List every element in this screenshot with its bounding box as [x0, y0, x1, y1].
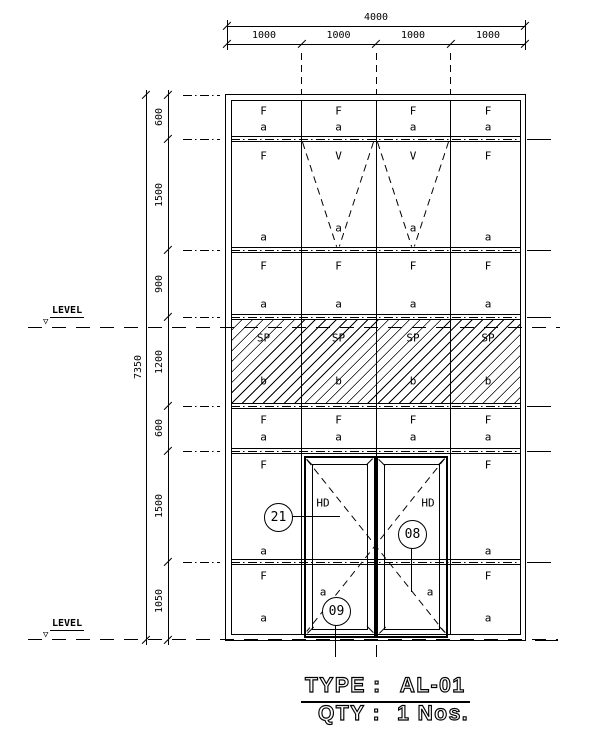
- transom: [231, 136, 521, 142]
- dim-label-overall-width: 4000: [364, 13, 388, 23]
- door-hardware-label: HD: [316, 498, 329, 509]
- extension-line: [527, 317, 551, 318]
- transom: [231, 448, 521, 454]
- panel-label: F: [260, 106, 267, 117]
- extension-line: [183, 451, 220, 452]
- qty-label: QTY :: [318, 702, 381, 726]
- panel-label: F: [485, 261, 492, 272]
- extension-line: [527, 406, 551, 407]
- extension-line: [183, 139, 220, 140]
- panel-label: b: [485, 376, 492, 387]
- dim-label-segment: 1050: [155, 589, 165, 613]
- panel-label: b: [335, 376, 342, 387]
- panel-label: F: [260, 415, 267, 426]
- panel-label: F: [335, 106, 342, 117]
- dim-label-segment: 900: [155, 275, 165, 293]
- centerline: [450, 53, 451, 95]
- panel-label: F: [335, 261, 342, 272]
- panel-label: V: [410, 151, 417, 162]
- extension-line: [527, 139, 551, 140]
- panel-label: F: [260, 571, 267, 582]
- panel-label: F: [485, 460, 492, 471]
- dim-label-segment: 1000: [401, 31, 425, 41]
- panel-label: a: [410, 122, 417, 133]
- extension-line: [183, 562, 220, 563]
- dim-label-segment: 600: [155, 108, 165, 126]
- centerline: [301, 53, 302, 95]
- dim-label-segment: 1200: [155, 350, 165, 374]
- extension-line: [183, 250, 220, 251]
- panel-label: a: [335, 299, 342, 310]
- extension-line: [183, 317, 220, 318]
- level-label: LEVEL: [50, 306, 84, 318]
- centerline-stub: [376, 645, 377, 657]
- panel-label: F: [485, 151, 492, 162]
- level-marker-icon: ▽: [43, 318, 48, 327]
- panel-label: F: [335, 415, 342, 426]
- extension-line: [527, 250, 551, 251]
- panel-label: a: [410, 299, 417, 310]
- panel-label: a: [260, 122, 267, 133]
- panel-label: a: [260, 546, 267, 557]
- callout-number: 21: [271, 510, 287, 525]
- dim-label-overall-height: 7350: [134, 355, 144, 379]
- panel-label: F: [410, 261, 417, 272]
- qty-title: QTY : 1 Nos.: [318, 702, 469, 726]
- panel-label: V: [335, 151, 342, 162]
- panel-label: a: [485, 432, 492, 443]
- transom: [231, 403, 521, 409]
- panel-label: SP: [481, 333, 494, 344]
- leader-line: [411, 547, 412, 592]
- elevation-drawing: 4000 1000 1000 1000 1000 7350 600 1500 9…: [0, 0, 601, 731]
- panel-label: F: [410, 415, 417, 426]
- extension-line: [183, 406, 220, 407]
- panel-label: SP: [332, 333, 345, 344]
- centerline: [376, 53, 377, 95]
- panel-label: F: [485, 571, 492, 582]
- panel-label: SP: [257, 333, 270, 344]
- panel-label: a: [335, 223, 342, 234]
- dim-label-segment: 1000: [326, 31, 350, 41]
- leader-line: [335, 624, 336, 657]
- extension-line: [183, 95, 220, 96]
- callout-bubble-09: 09: [322, 597, 351, 626]
- type-value: AL-01: [400, 674, 466, 698]
- callout-bubble-21: 21: [264, 503, 293, 532]
- panel-label: a: [320, 587, 327, 598]
- panel-label: SP: [406, 333, 419, 344]
- callout-bubble-08: 08: [398, 520, 427, 549]
- panel-label: F: [485, 106, 492, 117]
- dim-label-segment: 1000: [252, 31, 276, 41]
- panel-label: a: [260, 613, 267, 624]
- panel-label: a: [335, 432, 342, 443]
- panel-label: a: [335, 122, 342, 133]
- extension-line: [527, 451, 551, 452]
- panel-label: a: [485, 546, 492, 557]
- panel-label: a: [410, 432, 417, 443]
- panel-label: a: [485, 232, 492, 243]
- panel-label: b: [410, 376, 417, 387]
- panel-label: b: [260, 376, 267, 387]
- dim-label-segment: 600: [155, 419, 165, 437]
- dim-label-segment: 1500: [155, 183, 165, 207]
- type-title: TYPE : AL-01: [301, 674, 470, 703]
- panel-label: a: [410, 223, 417, 234]
- panel-label: a: [485, 613, 492, 624]
- panel-label: a: [485, 122, 492, 133]
- qty-value: 1 Nos.: [397, 702, 469, 726]
- level-label: LEVEL: [50, 619, 84, 631]
- dim-label-segment: 1000: [476, 31, 500, 41]
- panel-label: a: [260, 232, 267, 243]
- extension-line: [527, 562, 551, 563]
- panel-label: a: [485, 299, 492, 310]
- panel-label: F: [485, 415, 492, 426]
- panel-label: a: [427, 587, 434, 598]
- panel-label: F: [260, 261, 267, 272]
- panel-label: a: [260, 432, 267, 443]
- door-hardware-label: HD: [421, 498, 434, 509]
- transom: [231, 247, 521, 253]
- panel-label: a: [260, 299, 267, 310]
- type-label: TYPE :: [305, 674, 382, 698]
- level-marker-icon: ▽: [43, 631, 48, 640]
- panel-label: F: [260, 460, 267, 471]
- dim-line-left-overall: [146, 90, 147, 645]
- callout-number: 08: [405, 527, 421, 542]
- leader-line: [290, 516, 340, 517]
- panel-label: F: [260, 151, 267, 162]
- callout-number: 09: [329, 604, 345, 619]
- spandrel-hatch: [232, 320, 520, 403]
- panel-label: F: [410, 106, 417, 117]
- dim-label-segment: 1500: [155, 494, 165, 518]
- dim-line-top-overall: [227, 26, 525, 27]
